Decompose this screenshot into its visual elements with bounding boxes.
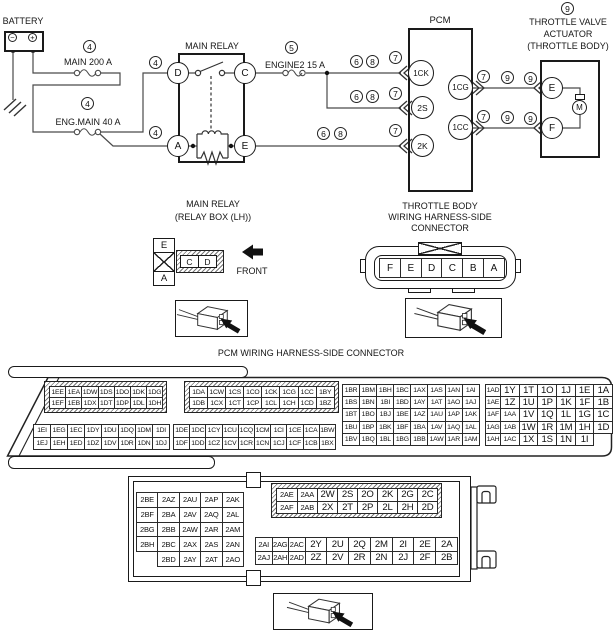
pin-cell: 2AB <box>297 501 319 515</box>
lower-connector-block-left: 2BE2AZ2AU2AP2AK2BF2BA2AV2AQ2AL2BG2BB2AW2… <box>136 492 243 566</box>
pin-row: 2BG2BB2AW2AR2AM <box>136 522 243 538</box>
pcm-terminal-2s: 2S <box>411 96 434 119</box>
pin-row: 1DB1CX1CT1CP1CL1CH1CD1BZ <box>189 397 334 409</box>
pin-cell: 2AT <box>200 551 222 567</box>
callout-9: 9 <box>501 111 514 124</box>
pin-cell: 2BD <box>157 551 179 567</box>
pin-cell: 2V <box>326 551 349 566</box>
motor-icon: M <box>572 100 587 115</box>
connector-photo-box <box>405 298 502 338</box>
pcm-terminal-2k: 2K <box>411 134 434 157</box>
callout-4: 4 <box>149 126 162 139</box>
pin-cell: 1DM <box>135 424 153 438</box>
pin-cell: 2AV <box>179 507 201 523</box>
callout-8: 8 <box>334 127 347 140</box>
throttle-connector-title-line1: THROTTLE BODY <box>380 201 500 211</box>
pin-cell: 2M <box>370 537 393 552</box>
pin-cell: 2K <box>377 488 398 502</box>
pcm-connector-block-e: 1EI1EG1EC1DY1DU1DQ1DM1DI1EJ1EH1ED1DZ1DV1… <box>33 424 169 449</box>
actuator-title-line2: ACTUATOR <box>505 29 616 39</box>
pin-cell: 2U <box>326 537 349 552</box>
relay-terminal-e: E <box>234 135 256 157</box>
pin-cell: 2AY <box>179 551 201 567</box>
pin-cell: 1DV <box>101 437 119 451</box>
pin-cell: 2AN <box>222 536 244 552</box>
pin-cell: 1CV <box>222 437 239 451</box>
callout-6: 6 <box>350 55 363 68</box>
pin-cell: 1DY <box>84 424 102 438</box>
pin-cell: 2C <box>417 488 438 502</box>
fuse-engine2-15a-label: ENGINE2 15 A <box>253 60 337 70</box>
connector-photo-box <box>273 593 373 630</box>
main-relay-label: MAIN RELAY <box>172 41 252 51</box>
callout-4: 4 <box>149 56 162 69</box>
pin-cell: E <box>400 258 422 278</box>
pcm-terminal-1cc: 1CC <box>448 115 473 140</box>
fuse-engmain-40a-icon <box>74 129 100 136</box>
callout-7: 7 <box>389 124 402 137</box>
pin-cell: 1CE <box>286 424 303 438</box>
pin-row: 1EJ1EH1ED1DZ1DV1DR1DN1DJ <box>33 437 169 451</box>
pin-cell: 1BG <box>393 433 411 446</box>
pin-row: 1DF1DD1CZ1CV1CR1CN1CJ1CF1CB1BX <box>173 437 335 451</box>
pin-cell: 2R <box>348 551 371 566</box>
callout-7: 7 <box>477 110 490 123</box>
actuator-terminal-e: E <box>541 77 563 99</box>
pin-cell: 1CL <box>261 397 280 409</box>
pin-cell: 1EG <box>50 424 68 438</box>
pin-cell: 2F <box>413 551 436 566</box>
pin-cell: 2BA <box>157 507 179 523</box>
pin-cell: 1BV <box>342 433 360 446</box>
pin-cell: 2AD <box>288 551 306 566</box>
pin-cell: 2AA <box>297 488 319 502</box>
callout-9: 9 <box>524 72 537 85</box>
pin-cell: 1BB <box>410 433 428 446</box>
connector-photo-box <box>175 300 248 337</box>
pin-cell: 1CX <box>207 397 226 409</box>
pin-cell: 1EJ <box>33 437 51 451</box>
fuse-main-200a-icon <box>74 70 100 77</box>
pin-cell: 2BC <box>157 536 179 552</box>
pin-cell: 2AJ <box>255 551 273 566</box>
callout-8: 8 <box>366 55 379 68</box>
callout-9: 9 <box>561 2 574 15</box>
pin-cell: 2AG <box>272 537 290 552</box>
pin-cell: 1DP <box>114 397 131 409</box>
pin-row: 2AI2AG2AC2Y2U2Q2M2I2E2A <box>255 537 457 552</box>
pin-cell: 1DF <box>173 437 190 451</box>
pin-cell: 1BZ <box>316 397 335 409</box>
pin-cell: 1CF <box>286 437 303 451</box>
pin-cell: 2W <box>317 488 338 502</box>
pcm-connector-block-c: 1BR1BM1BH1BC1AX1AS1AN1AI1BS1BN1BI1BD1AY1… <box>342 384 479 445</box>
lower-connector-block-bottom-right: 2AI2AG2AC2Y2U2Q2M2I2E2A2AJ2AH2AD2Z2V2R2N… <box>255 537 457 564</box>
pcm-connector-block-f: 1DE1DC1CY1CU1CQ1CM1CI1CE1CA1BW1DF1DD1CZ1… <box>173 424 335 449</box>
pin-cell: 1CZ <box>205 437 222 451</box>
pcm-label: PCM <box>415 15 465 26</box>
battery-minus-sign: − <box>8 33 17 42</box>
callout-7: 7 <box>389 51 402 64</box>
pin-cell: 1I <box>575 433 595 446</box>
pin-cell: 2AC <box>288 537 306 552</box>
pin-cell: 1CP <box>243 397 262 409</box>
pin-cell: 1D <box>593 421 613 434</box>
pin-cell: 2AI <box>255 537 273 552</box>
pin-row: 2BD2AY2AT2AO <box>136 551 243 567</box>
pin-cell: 1DI <box>152 424 170 438</box>
pin-cell: 1DN <box>135 437 153 451</box>
pin-cell: 1CJ <box>270 437 287 451</box>
pin-cell: 1EH <box>50 437 68 451</box>
pin-cell: F <box>379 258 401 278</box>
pin-cell: 2A <box>435 537 458 552</box>
pin-cell: 2J <box>392 551 415 566</box>
pcm-connector-title: PCM WIRING HARNESS-SIDE CONNECTOR <box>191 348 431 358</box>
pin-row: 2AJ2AH2AD2Z2V2R2N2J2F2B <box>255 551 457 566</box>
pcm-terminal-1ck: 1CK <box>408 60 434 86</box>
pin-cell: 1CY <box>205 424 222 438</box>
ground-icon <box>4 99 26 116</box>
pin-cell: 2AP <box>200 492 222 508</box>
actuator-terminal-f: F <box>541 117 563 139</box>
pin-cell: 1N <box>556 433 576 446</box>
pin-cell: 2BE <box>136 492 158 508</box>
pcm-connector-block-b: 1DA1CW1CS1CO1CK1CG1CC1BY1DB1CX1CT1CP1CL1… <box>184 381 339 413</box>
pin-row: 1BV1BQ1BL1BG1BB1AW1AR1AM <box>342 433 479 446</box>
pin-row: 1EF1EB1DX1DT1DP1DL1DH <box>49 397 162 409</box>
throttle-actuator-box <box>540 60 600 158</box>
pin-row: 1AH1AC1X1S1N1I <box>485 433 612 446</box>
pin-cell: 1S <box>537 433 557 446</box>
pin-cell: 2X <box>317 501 338 515</box>
pin-cell: 1DZ <box>84 437 102 451</box>
pin-cell: 1CM <box>254 424 271 438</box>
actuator-title-line1: THROTTLE VALVE <box>505 17 616 27</box>
pin-cell: 2AS <box>200 536 222 552</box>
throttle-connector-keyway <box>418 242 462 255</box>
throttle-connector-title-line2: WIRING HARNESS-SIDE <box>370 212 510 222</box>
callout-4: 4 <box>83 40 96 53</box>
pin-cell: 1AH <box>485 433 501 446</box>
pin-cell: 2B <box>435 551 458 566</box>
pin-cell: 1DJ <box>152 437 170 451</box>
front-label: FRONT <box>222 266 282 276</box>
pin-cell: 2N <box>370 551 393 566</box>
relay-connector-pin-a: A <box>153 271 175 286</box>
pin-cell: 2AM <box>222 522 244 538</box>
pin-cell: 1CI <box>270 424 287 438</box>
pin-cell: 2I <box>392 537 415 552</box>
pin-row: 2AE2AA2W2S2O2K2G2C <box>276 488 437 502</box>
pin-cell: 2AU <box>179 492 201 508</box>
pin-row: 2BH2BC2AX2AS2AN <box>136 536 243 552</box>
pcm-connector-block-d: 1AD1Y1T1O1J1E1A1AE1Z1U1P1K1F1B1AF1AA1V1Q… <box>485 384 612 445</box>
pcm-terminal-1cg: 1CG <box>448 75 473 100</box>
pin-cell: 2BH <box>136 536 158 552</box>
pin-cell: 2O <box>357 488 378 502</box>
pin-cell: 2AR <box>200 522 222 538</box>
wire-junction-dot <box>325 71 329 75</box>
battery-label: BATTERY <box>0 16 46 26</box>
pin-cell: 2AQ <box>200 507 222 523</box>
pin-cell: C <box>441 258 463 278</box>
relay-terminal-d: D <box>167 62 189 84</box>
callout-6: 6 <box>350 90 363 103</box>
pin-cell: 1CB <box>303 437 320 451</box>
pin-cell: 1DB <box>189 397 208 409</box>
callout-7: 7 <box>477 70 490 83</box>
pin-cell: 1CH <box>279 397 298 409</box>
pin-cell: 2Y <box>305 537 328 552</box>
pin-cell: 2L <box>377 501 398 515</box>
pin-cell: 1X <box>519 433 539 446</box>
pcm-connector-bottom-rail <box>8 456 215 469</box>
pin-cell: 1AW <box>427 433 445 446</box>
pin-cell: 1DT <box>98 397 115 409</box>
pin-cell: 1DC <box>189 424 206 438</box>
pin-cell: 2S <box>337 488 358 502</box>
relay-connector-keyway <box>153 252 175 272</box>
pin-cell: 1BQ <box>359 433 377 446</box>
actuator-title-line3: (THROTTLE BODY) <box>505 41 616 51</box>
pcm-connector-block-a: 1EE1EA1DW1DS1DO1DK1DG1EF1EB1DX1DT1DP1DL1… <box>44 381 167 413</box>
pin-cell: 1AM <box>462 433 480 446</box>
pin-cell: 1DR <box>118 437 136 451</box>
throttle-connector-title-line3: CONNECTOR <box>390 223 490 233</box>
pin-cell: 1CQ <box>238 424 255 438</box>
lower-connector-bottom-notch <box>246 570 261 586</box>
pin-cell: 2BF <box>136 507 158 523</box>
pin-cell: 1EF <box>49 397 66 409</box>
pin-row: 2BF2BA2AV2AQ2AL <box>136 507 243 523</box>
pin-cell: 1BL <box>376 433 394 446</box>
pin-cell: 1DE <box>173 424 190 438</box>
relay-connector-title-line1: MAIN RELAY <box>160 199 266 209</box>
pin-cell: 1BX <box>319 437 336 451</box>
pin-cell: 1DQ <box>118 424 136 438</box>
pin-cell: 2AZ <box>157 492 179 508</box>
pin-cell: D <box>421 258 443 278</box>
pin-row: 1DE1DC1CY1CU1CQ1CM1CI1CE1CA1BW <box>173 424 335 438</box>
pin-cell: 2P <box>357 501 378 515</box>
throttle-connector-pin-row: FEDCBA <box>379 258 504 277</box>
callout-6: 6 <box>317 127 330 140</box>
battery-plus-sign: + <box>28 33 37 42</box>
relay-connector-pin-e: E <box>153 238 175 253</box>
connector-icon <box>406 299 501 337</box>
pin-cell: 1AR <box>445 433 463 446</box>
pin-cell: 2AL <box>222 507 244 523</box>
relay-connector-pin-c: C <box>180 255 199 268</box>
pin-cell: B <box>462 258 484 278</box>
pin-cell: 1EB <box>65 397 82 409</box>
pin-cell: 2G <box>397 488 418 502</box>
relay-terminal-a: A <box>167 135 189 157</box>
pin-cell: 2AK <box>222 492 244 508</box>
pin-row: 2AF2AB2X2T2P2L2H2D <box>276 501 437 515</box>
lower-connector-side-tabs <box>471 486 496 569</box>
pin-cell: 1DU <box>101 424 119 438</box>
pin-cell: 1EI <box>33 424 51 438</box>
pin-cell: A <box>483 258 505 278</box>
pin-cell: 1BW <box>319 424 336 438</box>
lower-connector-block-top-right: 2AE2AA2W2S2O2K2G2C2AF2AB2X2T2P2L2H2D <box>271 483 442 518</box>
pin-cell: 2AF <box>276 501 298 515</box>
pin-cell: 2T <box>337 501 358 515</box>
pin-cell: 1DX <box>81 397 98 409</box>
pin-row: FEDCBA <box>379 258 504 278</box>
lower-connector-top-notch <box>246 472 261 488</box>
pin-cell: 2BB <box>157 522 179 538</box>
pin-cell: 2Q <box>348 537 371 552</box>
pin-row: 1EI1EG1EC1DY1DU1DQ1DM1DI <box>33 424 169 438</box>
pin-cell: 1DH <box>146 397 163 409</box>
connector-icon <box>274 594 372 629</box>
pin-row: 2BE2AZ2AU2AP2AK <box>136 492 243 508</box>
pin-cell: 1CT <box>225 397 244 409</box>
callout-4: 4 <box>81 97 94 110</box>
connector-icon <box>176 301 247 336</box>
pin-cell: 2AW <box>179 522 201 538</box>
pin-cell: 2AX <box>179 536 201 552</box>
pin-cell: 2BG <box>136 522 158 538</box>
front-direction-arrow <box>242 245 263 260</box>
pin-cell: 1CA <box>303 424 320 438</box>
pin-cell: 1CN <box>254 437 271 451</box>
callout-7: 7 <box>389 87 402 100</box>
relay-connector-pin-d: D <box>198 255 217 268</box>
pin-cell: 1ED <box>67 437 85 451</box>
pin-cell: 2AH <box>272 551 290 566</box>
pin-cell: 1CU <box>222 424 239 438</box>
callout-9: 9 <box>501 71 514 84</box>
pin-cell: 1DL <box>130 397 147 409</box>
callout-8: 8 <box>366 90 379 103</box>
pin-cell: 2AO <box>222 551 244 567</box>
fuse-main-200a-label: MAIN 200 A <box>46 57 130 67</box>
callout-9: 9 <box>524 112 537 125</box>
pin-cell: 1CD <box>298 397 317 409</box>
callout-5: 5 <box>285 41 298 54</box>
pin-cell: 2AE <box>276 488 298 502</box>
relay-connector-title-line2: (RELAY BOX (LH)) <box>160 212 266 222</box>
pin-cell: 1EC <box>67 424 85 438</box>
pcm-connector-top-rail <box>8 366 248 378</box>
pin-cell: 2Z <box>305 551 328 566</box>
pin-cell: 1AC <box>500 433 520 446</box>
pin-cell: 2E <box>413 537 436 552</box>
fuse-engine2-15a-icon <box>283 70 305 76</box>
wiring-diagram-page: BATTERY − + 4 MAIN 200 A 4 ENG.MAIN 40 A… <box>0 0 616 634</box>
pin-cell: 1CR <box>238 437 255 451</box>
pin-cell: 2H <box>397 501 418 515</box>
fuse-engmain-40a-label: ENG.MAIN 40 A <box>40 117 136 127</box>
pin-cell: 1DD <box>189 437 206 451</box>
pin-cell: 2D <box>417 501 438 515</box>
